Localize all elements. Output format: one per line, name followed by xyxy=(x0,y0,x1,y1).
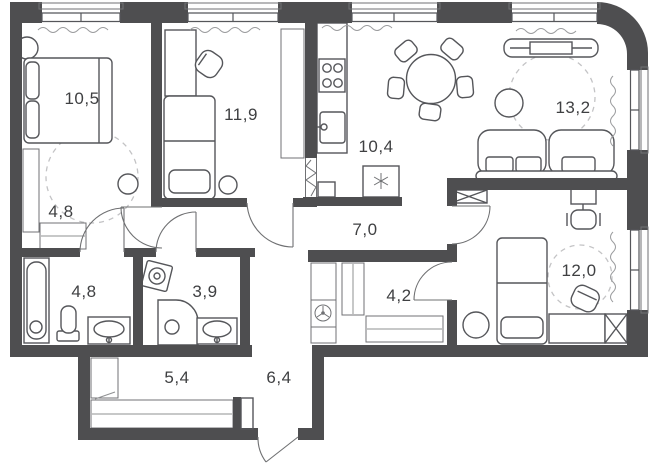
washbasin-icon xyxy=(88,317,130,344)
toilet-icon xyxy=(57,306,79,341)
sofa-icon xyxy=(476,130,617,181)
floor-plan: 10,5 11,9 10,4 13,2 4,8 7,0 4,8 3,9 4,2 … xyxy=(0,0,649,465)
room-label-wardrobe: 5,4 xyxy=(164,368,189,387)
kitchen-furniture xyxy=(317,23,474,197)
window xyxy=(39,2,123,23)
window xyxy=(185,2,281,23)
door-swing-bedroom3 xyxy=(452,206,490,244)
room-label-dressing: 4,8 xyxy=(48,202,73,221)
floor-plan-svg: 10,5 11,9 10,4 13,2 4,8 7,0 4,8 3,9 4,2 … xyxy=(0,0,649,465)
folding-door-icon xyxy=(306,158,317,197)
room-label-bedroom-2: 11,9 xyxy=(224,105,258,124)
dresser-icon xyxy=(549,314,627,343)
dressing-shelves xyxy=(23,149,86,249)
room-label-kitchen: 10,4 xyxy=(358,137,393,156)
desk-icon xyxy=(165,30,196,96)
door-swing-closet xyxy=(414,262,452,300)
pouf-icon xyxy=(463,312,489,338)
washbasin-icon xyxy=(197,318,237,344)
room-label-bedroom-1: 10,5 xyxy=(64,89,99,108)
window xyxy=(627,67,648,153)
door-swing-shower-room xyxy=(156,212,196,252)
wardrobe-hanger-rods xyxy=(91,358,233,428)
washing-machine-icon xyxy=(141,260,173,292)
window xyxy=(627,227,648,313)
nightstand-icon xyxy=(219,176,237,194)
cabinet-icon xyxy=(318,182,335,197)
stool-icon xyxy=(118,174,138,194)
room-label-entry-hall: 6,4 xyxy=(266,368,291,387)
office-chair-icon xyxy=(567,189,600,229)
door-swing-bedroom1 xyxy=(121,207,162,248)
room-label-closet: 4,2 xyxy=(386,286,411,305)
room-label-bathroom: 4,8 xyxy=(71,282,96,301)
shower-icon xyxy=(158,300,198,345)
dining-chair-icon xyxy=(387,77,405,99)
door-swing-bedroom2 xyxy=(247,203,293,247)
room-label-shower-room: 3,9 xyxy=(192,282,217,301)
living-room-furniture xyxy=(476,39,617,181)
bedroom2-wardrobe-shelves xyxy=(281,29,304,158)
chair-icon xyxy=(569,283,602,315)
dining-set xyxy=(387,36,474,121)
ventilation-fan-icon xyxy=(315,305,331,321)
kitchen-sink-icon xyxy=(317,112,345,143)
window xyxy=(509,2,600,23)
room-label-bedroom-3: 12,0 xyxy=(561,261,596,280)
dining-chair-icon xyxy=(456,76,474,98)
dining-table-icon xyxy=(407,55,456,104)
window xyxy=(349,2,440,23)
tv-console-icon xyxy=(504,39,598,57)
single-bed-icon xyxy=(497,238,547,344)
bathroom-furniture xyxy=(24,258,130,344)
bedroom1-furniture xyxy=(16,37,138,194)
stove-icon xyxy=(319,59,345,92)
room-label-hallway: 7,0 xyxy=(352,220,377,239)
shower-room-furniture xyxy=(141,260,237,345)
bedroom3-furniture xyxy=(451,189,627,344)
side-table-icon xyxy=(495,89,523,117)
bathtub-icon xyxy=(24,258,49,343)
room-label-living-room: 13,2 xyxy=(555,98,590,117)
dining-chair-icon xyxy=(418,103,441,122)
fridge-icon xyxy=(363,166,399,197)
single-bed-icon xyxy=(164,96,215,199)
ventilation-shaft xyxy=(311,263,336,343)
desk-chair-icon xyxy=(192,47,225,80)
